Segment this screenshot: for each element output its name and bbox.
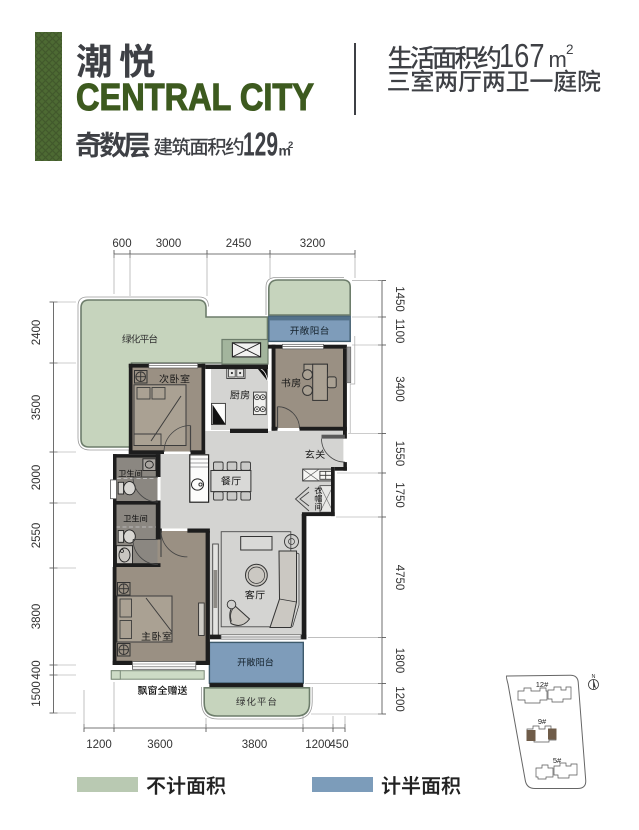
svg-text:3500: 3500 [31, 395, 43, 421]
svg-text:3600: 3600 [147, 739, 173, 751]
svg-text:1200: 1200 [86, 739, 112, 751]
svg-text:1450: 1450 [393, 286, 405, 312]
svg-text:167: 167 [499, 37, 545, 74]
svg-text:1550: 1550 [393, 441, 405, 467]
svg-text:2400: 2400 [31, 320, 43, 346]
svg-text:3000: 3000 [156, 238, 182, 250]
svg-text:N: N [592, 674, 596, 680]
svg-text:2000: 2000 [31, 465, 43, 491]
svg-text:2450: 2450 [226, 238, 252, 250]
svg-text:3400: 3400 [393, 376, 405, 402]
svg-text:400: 400 [31, 660, 43, 679]
svg-text:600: 600 [112, 238, 131, 250]
svg-text:450: 450 [329, 739, 348, 751]
svg-text:4750: 4750 [393, 565, 405, 591]
svg-text:1200: 1200 [393, 686, 405, 712]
svg-text:9#: 9# [538, 717, 547, 726]
svg-text:m: m [549, 47, 567, 72]
svg-text:129: 129 [243, 126, 278, 163]
svg-text:1100: 1100 [393, 319, 405, 344]
svg-text:2: 2 [288, 140, 293, 151]
svg-text:2: 2 [566, 42, 574, 57]
svg-text:1500: 1500 [31, 681, 43, 707]
svg-text:3200: 3200 [300, 238, 326, 250]
svg-text:2550: 2550 [31, 523, 43, 549]
svg-text:3800: 3800 [31, 604, 43, 630]
svg-text:1800: 1800 [393, 648, 405, 674]
svg-text:1750: 1750 [393, 482, 405, 508]
svg-text:1200: 1200 [305, 739, 331, 751]
svg-text:CENTRAL CITY: CENTRAL CITY [76, 77, 314, 119]
svg-text:3800: 3800 [242, 739, 268, 751]
